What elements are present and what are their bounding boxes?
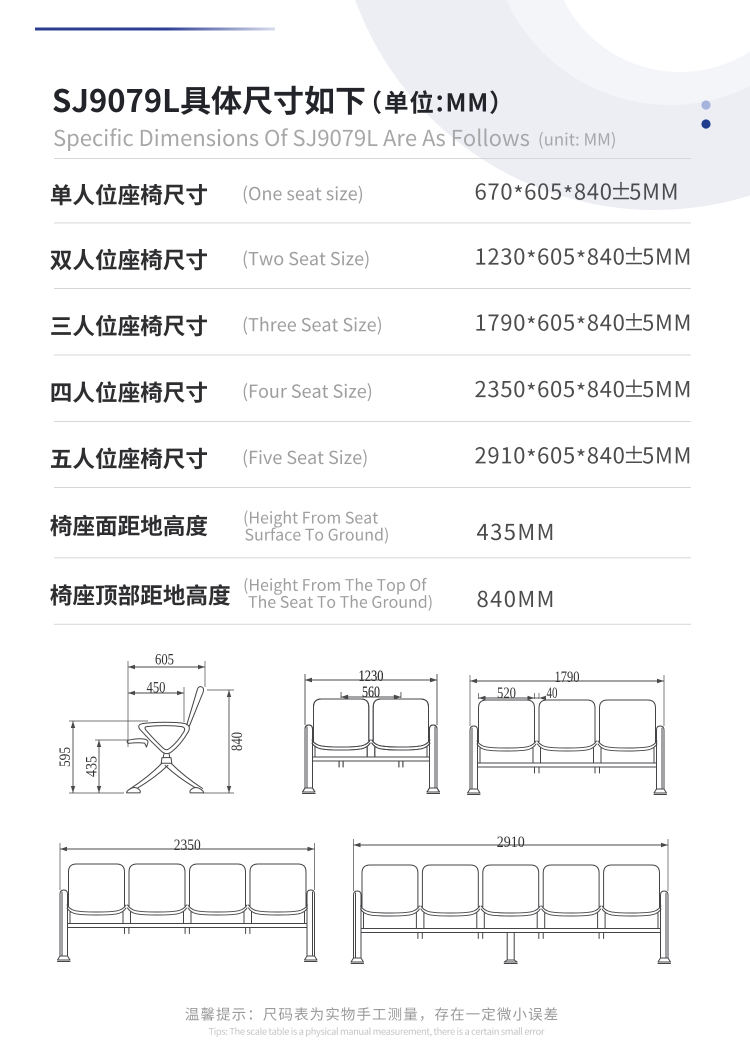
svg-text:560: 560 <box>362 684 380 701</box>
svg-text:605: 605 <box>155 652 174 669</box>
svg-text:1790: 1790 <box>555 669 580 686</box>
svg-text:840: 840 <box>229 732 246 751</box>
svg-text:435: 435 <box>84 756 101 777</box>
svg-text:2350: 2350 <box>174 837 201 854</box>
svg-text:40: 40 <box>547 685 558 702</box>
svg-text:450: 450 <box>147 680 166 697</box>
svg-text:520: 520 <box>497 685 516 702</box>
svg-text:2910: 2910 <box>497 834 525 851</box>
svg-text:1230: 1230 <box>359 668 384 685</box>
svg-text:595: 595 <box>57 747 74 767</box>
